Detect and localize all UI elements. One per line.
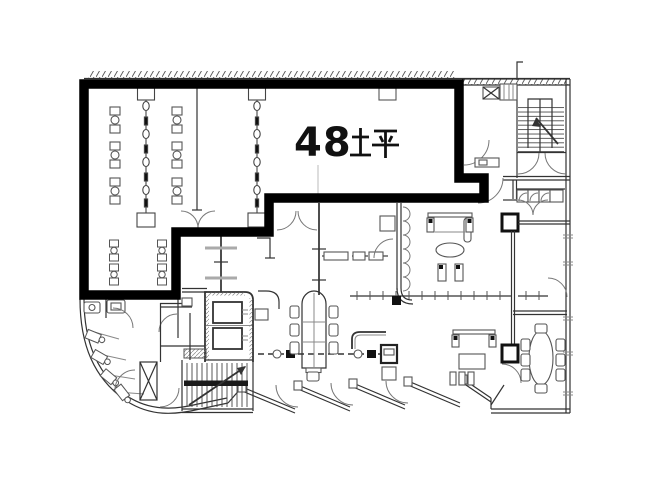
meeting-room [491,311,567,405]
column [502,345,518,362]
coffee-table [436,243,464,257]
floor-plan-page: 48 [0,0,650,493]
central-staircase [160,360,253,413]
locker-row [517,190,563,202]
column [502,214,518,231]
pipe-shaft [140,362,157,400]
area-label: 48 [294,120,399,166]
area-number: 48 [294,120,352,166]
accordion-partition [403,207,410,291]
elevator-car [213,328,242,349]
elevator-car [213,302,242,323]
reception-room [374,203,473,305]
duct-shaft-icon [483,84,517,100]
floor-plan: 48 [0,0,650,493]
sofa [427,213,473,232]
restrooms-top-right [502,180,570,231]
lounge-set [450,330,496,385]
oval-table [529,331,553,385]
column [392,296,401,305]
guest-chairs [438,264,463,281]
elevators [205,291,279,362]
hall-counter [184,349,206,358]
desk-room-partition [181,88,215,228]
tsubo-unit-glyph [350,128,399,158]
corridor-wall-right [512,231,515,345]
long-meeting-table [290,291,338,381]
